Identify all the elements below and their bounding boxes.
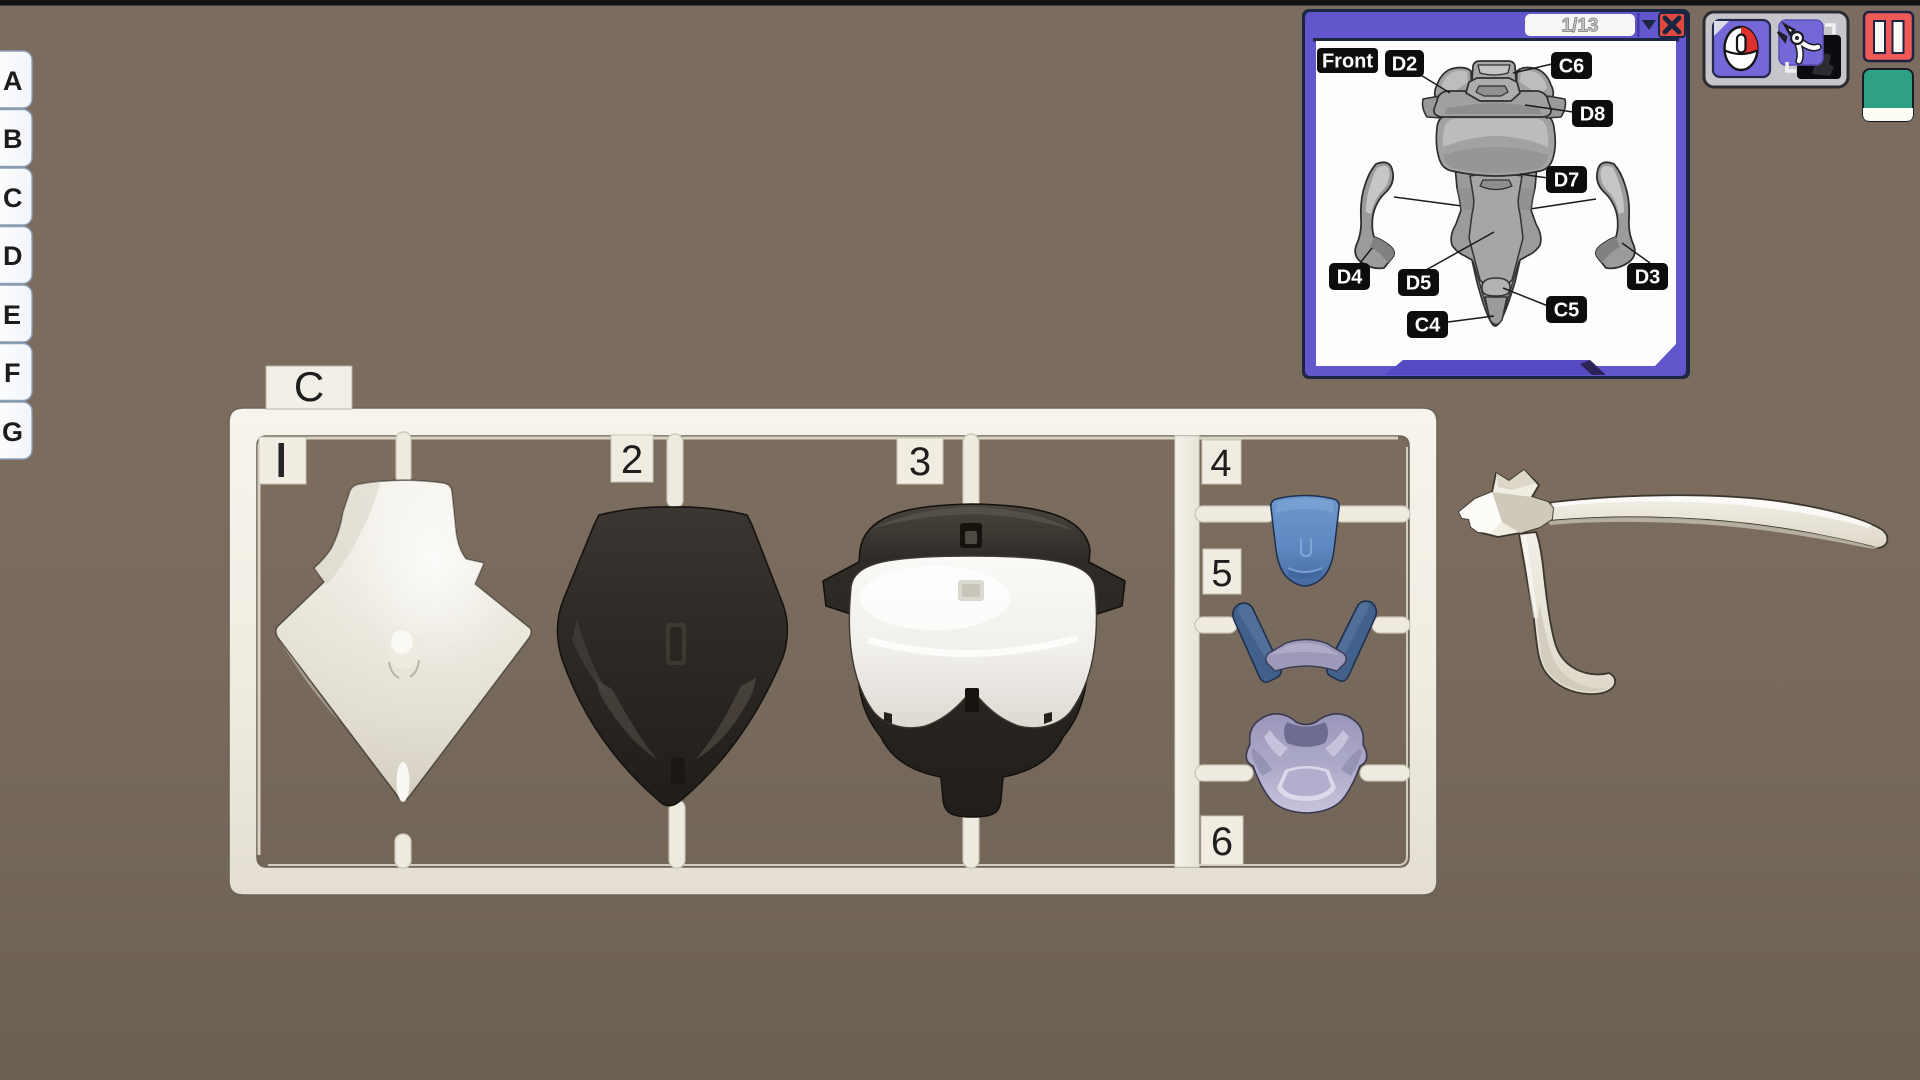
svg-text:1/13: 1/13 — [1562, 16, 1599, 37]
svg-text:D4: D4 — [1337, 267, 1363, 289]
svg-text:C5: C5 — [1554, 300, 1580, 322]
svg-text:C6: C6 — [1559, 56, 1585, 78]
svg-text:C: C — [3, 183, 23, 213]
svg-text:C4: C4 — [1415, 315, 1441, 337]
svg-text:D: D — [3, 241, 23, 271]
svg-text:D8: D8 — [1580, 104, 1606, 126]
svg-text:6: 6 — [1211, 820, 1233, 864]
svg-text:C: C — [294, 363, 324, 410]
svg-text:E: E — [3, 300, 21, 330]
svg-text:D2: D2 — [1392, 54, 1418, 76]
svg-text:D7: D7 — [1554, 170, 1580, 192]
svg-text:5: 5 — [1211, 553, 1232, 595]
svg-text:4: 4 — [1210, 443, 1231, 485]
svg-text:F: F — [4, 358, 21, 388]
svg-text:2: 2 — [621, 438, 643, 482]
svg-text:3: 3 — [909, 440, 931, 484]
svg-text:D5: D5 — [1406, 273, 1432, 295]
svg-text:Front: Front — [1322, 51, 1373, 73]
svg-text:G: G — [2, 417, 23, 447]
svg-text:D3: D3 — [1635, 267, 1661, 289]
svg-text:A: A — [3, 66, 23, 96]
svg-text:B: B — [3, 124, 23, 154]
